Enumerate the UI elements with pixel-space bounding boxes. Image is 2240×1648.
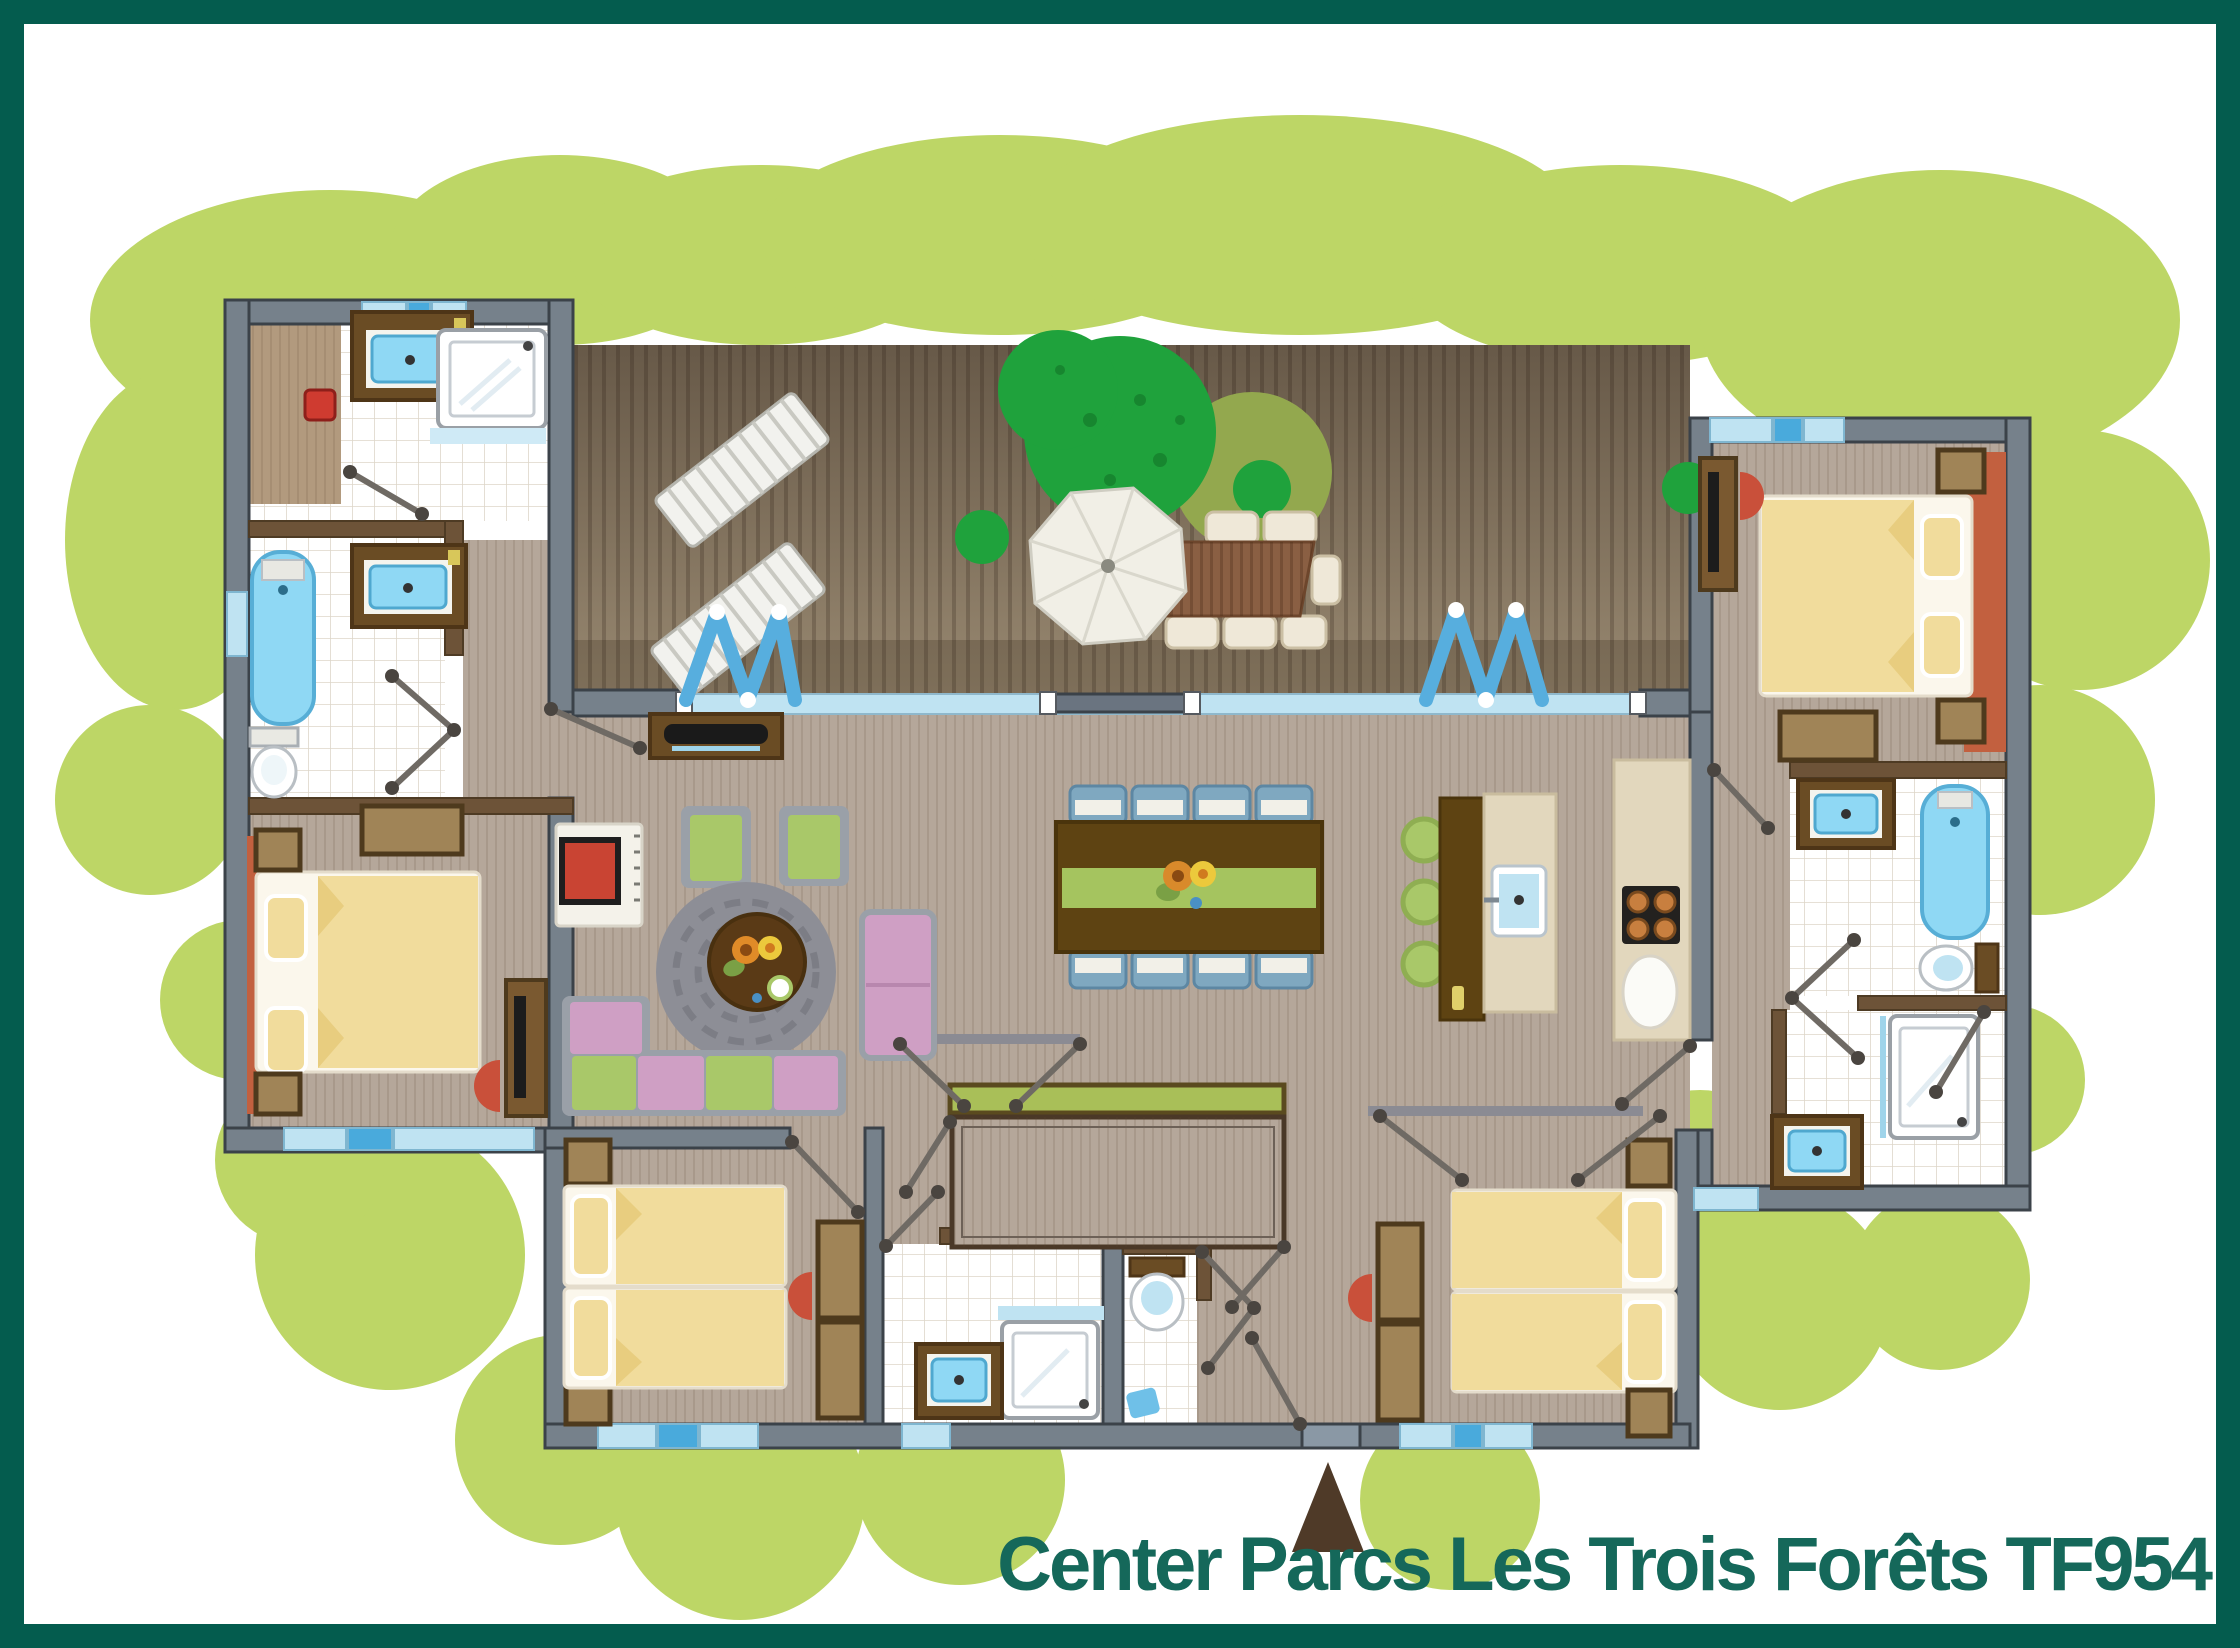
twin-bed [564, 1288, 786, 1388]
shower-cabin [430, 330, 546, 444]
counter-sink [1623, 956, 1677, 1028]
stove-top [1622, 886, 1680, 944]
dresser [1780, 712, 1876, 760]
nightstand [256, 1074, 300, 1114]
shower-cabin [1890, 1016, 1978, 1138]
shower-cabin [1002, 1322, 1098, 1418]
small-bush [1233, 460, 1291, 518]
washbasin [916, 1344, 1002, 1418]
toilet [1130, 1258, 1184, 1330]
nightstand [1938, 700, 1984, 742]
island-sink [1484, 866, 1546, 936]
tv-cabinet [650, 714, 782, 758]
washbasin [1772, 1116, 1862, 1188]
kitchen [1403, 760, 1690, 1040]
green-sideboard [950, 1085, 1284, 1113]
toilet [1920, 944, 1998, 992]
nightstand [566, 1140, 610, 1184]
wardrobe [1378, 1224, 1422, 1320]
twin-bed [1452, 1190, 1676, 1290]
nightstand [1628, 1140, 1670, 1186]
tv-cabinet [506, 980, 546, 1116]
wood-stove [556, 824, 642, 926]
nightstand [1628, 1390, 1670, 1436]
tv-cabinet [1700, 458, 1736, 590]
island-handle [1452, 986, 1464, 1010]
wardrobe [818, 1322, 862, 1418]
shower-glass [1880, 1016, 1886, 1138]
toilet [250, 728, 298, 797]
small-bush [955, 510, 1009, 564]
nightstand [256, 830, 300, 870]
double-bed [256, 872, 480, 1072]
wardrobe [1378, 1324, 1422, 1420]
dining-area [1056, 786, 1322, 988]
coffee-table [709, 914, 805, 1010]
dresser [362, 806, 462, 854]
armchair [779, 806, 849, 886]
red-heater [305, 390, 335, 420]
front-door [1302, 1424, 1360, 1448]
twin-bed [564, 1186, 786, 1286]
washbasin [352, 545, 466, 627]
armchair [681, 806, 751, 888]
plan-title: Center Parcs Les Trois Forêts TF954 [997, 1521, 2210, 1608]
floorplan-canvas [0, 0, 2240, 1648]
nightstand [1938, 450, 1984, 492]
double-bed [1760, 496, 1972, 696]
washbasin [1798, 780, 1894, 848]
twin-bed [1452, 1292, 1676, 1392]
wardrobe [818, 1222, 862, 1318]
